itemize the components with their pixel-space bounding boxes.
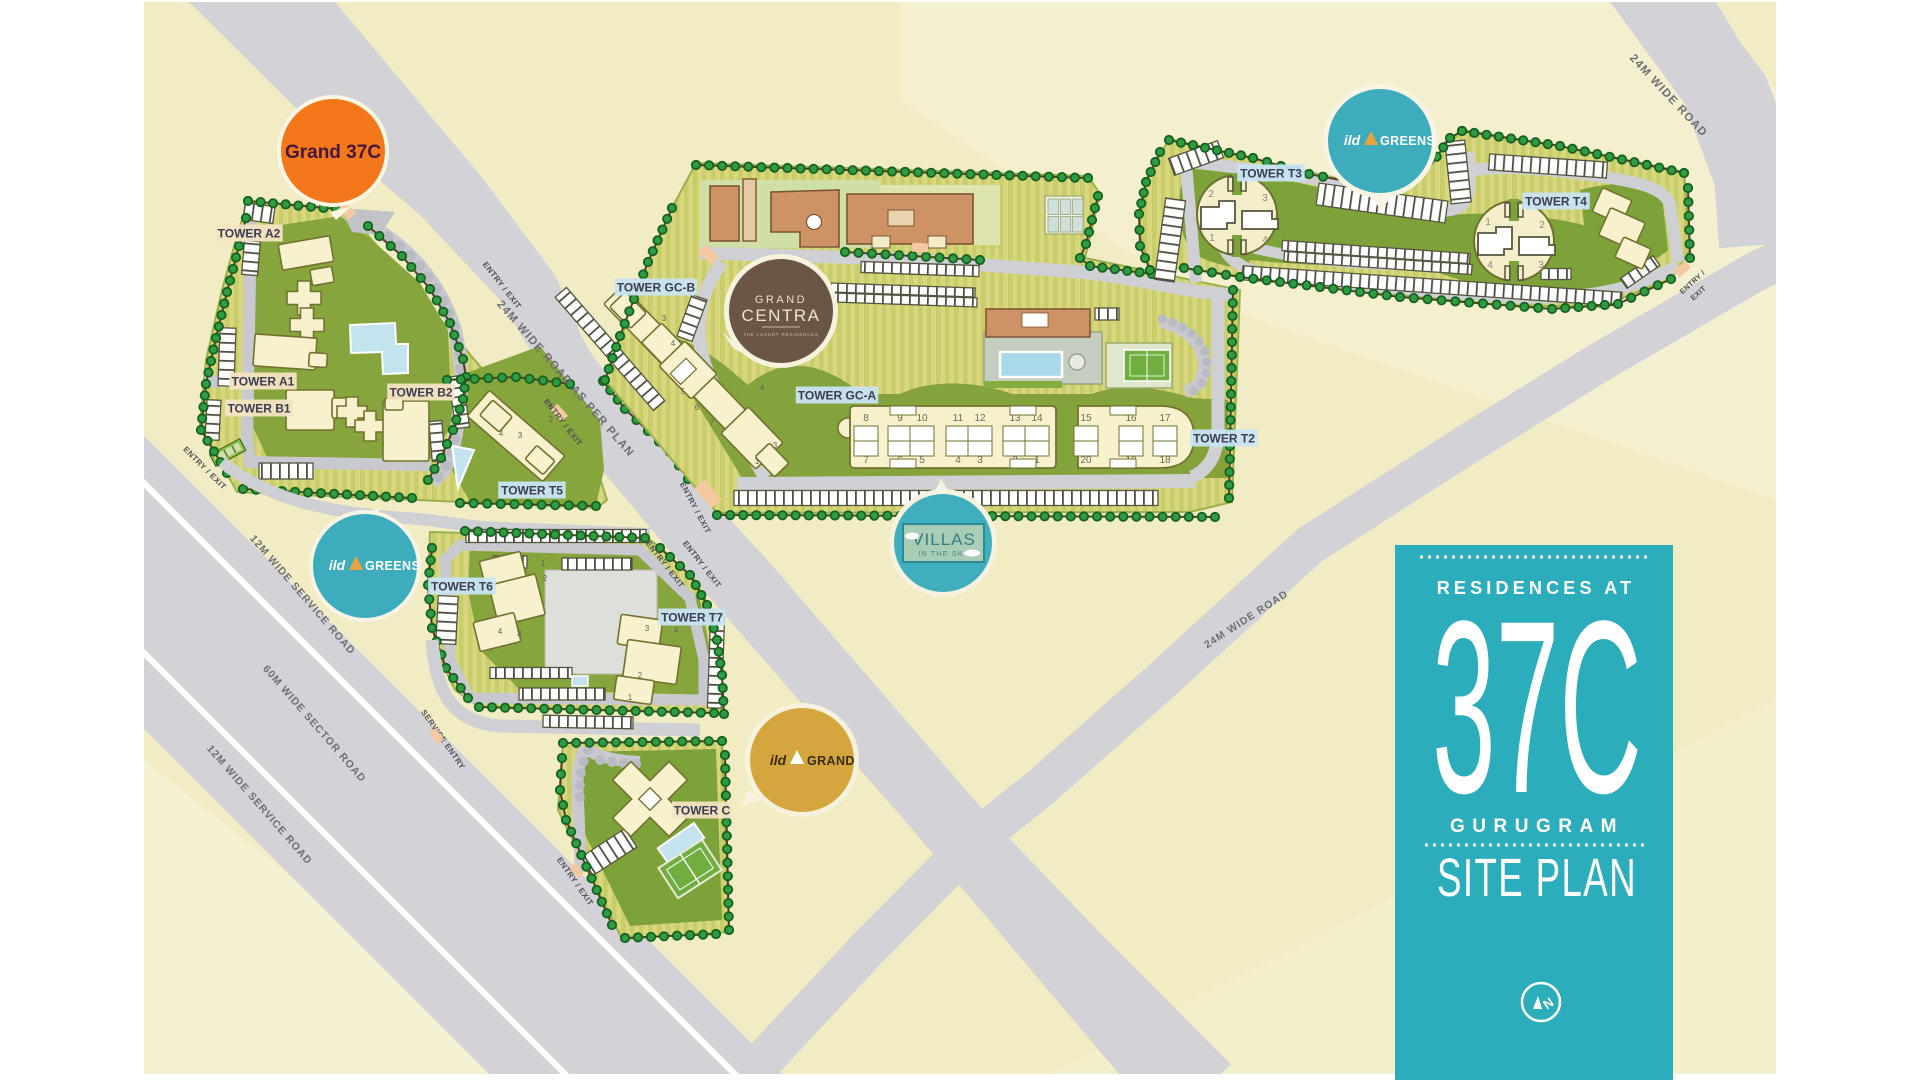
svg-text:ild: ild bbox=[1344, 132, 1361, 148]
svg-text:4: 4 bbox=[499, 429, 504, 438]
svg-text:1: 1 bbox=[1209, 233, 1215, 244]
svg-text:3: 3 bbox=[977, 455, 983, 466]
svg-text:IN THE SKY: IN THE SKY bbox=[918, 549, 970, 558]
svg-text:CENTRA: CENTRA bbox=[742, 306, 821, 325]
svg-text:TOWER A1: TOWER A1 bbox=[232, 375, 295, 389]
svg-text:2: 2 bbox=[1539, 220, 1545, 231]
svg-text:ild: ild bbox=[770, 752, 787, 768]
svg-text:1: 1 bbox=[1485, 217, 1491, 228]
svg-text:TOWER T3: TOWER T3 bbox=[1240, 167, 1302, 181]
svg-text:GURUGRAM: GURUGRAM bbox=[1450, 816, 1624, 837]
svg-text:3: 3 bbox=[1262, 193, 1268, 204]
svg-text:12: 12 bbox=[974, 413, 986, 424]
svg-text:4: 4 bbox=[760, 383, 765, 392]
svg-text:VILLAS: VILLAS bbox=[912, 530, 976, 549]
svg-text:TOWER T2: TOWER T2 bbox=[1193, 432, 1255, 446]
svg-text:3: 3 bbox=[1538, 260, 1544, 271]
svg-text:TOWER T4: TOWER T4 bbox=[1525, 195, 1587, 209]
svg-text:GREENS: GREENS bbox=[365, 559, 420, 573]
svg-text:TOWER GC-B: TOWER GC-B bbox=[617, 281, 696, 295]
svg-text:TOWER GC-A: TOWER GC-A bbox=[798, 389, 877, 403]
svg-text:GRAND: GRAND bbox=[755, 294, 807, 306]
svg-text:TOWER T5: TOWER T5 bbox=[501, 484, 563, 498]
svg-text:10: 10 bbox=[916, 413, 928, 424]
svg-text:1: 1 bbox=[628, 693, 633, 702]
svg-text:TOWER T7: TOWER T7 bbox=[661, 611, 723, 625]
svg-text:TOWER B1: TOWER B1 bbox=[227, 402, 290, 416]
svg-text:4: 4 bbox=[671, 339, 676, 348]
svg-text:TOWER B2: TOWER B2 bbox=[389, 386, 452, 400]
svg-text:GRAND: GRAND bbox=[807, 754, 855, 768]
svg-text:37C: 37C bbox=[1432, 569, 1642, 845]
svg-text:GREENS: GREENS bbox=[1380, 134, 1435, 148]
svg-text:ild: ild bbox=[329, 557, 346, 573]
svg-text:3: 3 bbox=[773, 441, 778, 450]
svg-text:8: 8 bbox=[863, 413, 869, 424]
svg-text:3: 3 bbox=[645, 624, 650, 633]
svg-text:7: 7 bbox=[863, 455, 869, 466]
svg-text:3: 3 bbox=[662, 314, 667, 323]
svg-text:SITE PLAN: SITE PLAN bbox=[1437, 847, 1637, 908]
svg-text:4: 4 bbox=[674, 626, 679, 635]
svg-text:2: 2 bbox=[543, 574, 548, 583]
svg-text:6: 6 bbox=[695, 403, 700, 412]
svg-text:11: 11 bbox=[953, 413, 964, 424]
svg-text:TOWER T6: TOWER T6 bbox=[431, 580, 493, 594]
svg-text:5: 5 bbox=[919, 455, 925, 466]
svg-text:4: 4 bbox=[1262, 235, 1268, 246]
svg-text:20: 20 bbox=[1080, 455, 1092, 466]
svg-text:4: 4 bbox=[1487, 260, 1493, 271]
svg-text:7: 7 bbox=[710, 418, 715, 427]
svg-text:3: 3 bbox=[518, 431, 523, 440]
svg-text:3: 3 bbox=[517, 629, 522, 638]
svg-text:18: 18 bbox=[1159, 455, 1171, 466]
svg-text:TOWER C: TOWER C bbox=[674, 804, 731, 818]
svg-text:TOWER A2: TOWER A2 bbox=[218, 227, 281, 241]
svg-text:5: 5 bbox=[681, 387, 686, 396]
svg-text:17: 17 bbox=[1159, 413, 1171, 424]
svg-text:2: 2 bbox=[638, 671, 643, 680]
svg-text:1: 1 bbox=[755, 457, 760, 466]
svg-text:4: 4 bbox=[498, 627, 503, 636]
svg-text:2: 2 bbox=[1208, 189, 1214, 200]
svg-text:1: 1 bbox=[541, 559, 546, 568]
svg-text:4: 4 bbox=[955, 455, 961, 466]
svg-text:Grand 37C: Grand 37C bbox=[285, 142, 381, 163]
svg-text:THE LUXURY RESIDENCES: THE LUXURY RESIDENCES bbox=[743, 332, 819, 337]
svg-text:15: 15 bbox=[1080, 413, 1092, 424]
